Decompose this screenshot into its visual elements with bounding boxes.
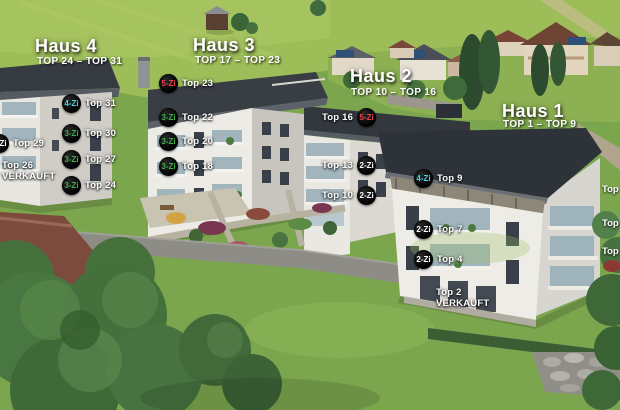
unit-label-top-23: 5-Zi Top 23 (159, 74, 213, 93)
unit-label-top-16: Top 16 5-Zi (322, 108, 376, 127)
room-count-badge: 3-Zi (62, 150, 81, 169)
room-count-badge: 4-Zi (62, 94, 81, 113)
sold-top-number: Top 26 (2, 160, 55, 171)
room-count-badge: 3-Zi (62, 176, 81, 195)
unit-top-number: Top 23 (182, 78, 213, 89)
unit-label-top-22: 3-Zi Top 22 (159, 108, 213, 127)
sold-status: VERKAUFT (2, 171, 55, 182)
room-count-badge: 5-Zi (159, 74, 178, 93)
edge-unit-label: Top (602, 246, 619, 257)
room-count-badge: 3-Zi (62, 124, 81, 143)
room-count-badge: 2-Zi (357, 156, 376, 175)
unit-top-number: Top 22 (182, 112, 213, 123)
unit-top-number: Top 9 (437, 173, 463, 184)
room-count-badge: 4-Zi (414, 169, 433, 188)
unit-top-number: Top 13 (322, 160, 353, 171)
room-count-badge: 2-Zi (414, 220, 433, 239)
sold-label-top-2: Top 2 VERKAUFT (436, 287, 489, 309)
room-count-badge: 2-Zi (0, 134, 9, 153)
haus-3-range: TOP 17 – TOP 23 (195, 55, 280, 66)
unit-label-top-24: 3-Zi Top 24 (62, 176, 116, 195)
sold-label-top-26: Top 26 VERKAUFT (2, 160, 55, 182)
unit-label-top-7: 2-Zi Top 7 (414, 220, 463, 239)
unit-top-number: Top 4 (437, 254, 463, 265)
unit-label-top-27: 3-Zi Top 27 (62, 150, 116, 169)
room-count-badge: 5-Zi (357, 108, 376, 127)
unit-top-number: Top 29 (13, 138, 44, 149)
haus-4-title: Haus 4 (35, 36, 97, 57)
room-count-badge: 2-Zi (357, 186, 376, 205)
haus-4-range: TOP 24 – TOP 31 (37, 56, 122, 67)
unit-top-number: Top 27 (85, 154, 116, 165)
unit-top-number: Top 31 (85, 98, 116, 109)
unit-label-top-9: 4-Zi Top 9 (414, 169, 463, 188)
unit-top-number: Top 20 (182, 136, 213, 147)
room-count-badge: 3-Zi (159, 157, 178, 176)
haus-2-range: TOP 10 – TOP 16 (351, 87, 436, 98)
unit-label-top-4: 2-Zi Top 4 (414, 250, 463, 269)
sold-top-number: Top 2 (436, 287, 489, 298)
unit-top-number: Top 18 (182, 161, 213, 172)
unit-label-top-29: 2-Zi Top 29 (0, 134, 44, 153)
unit-label-top-10: Top 10 2-Zi (322, 186, 376, 205)
sold-status: VERKAUFT (436, 298, 489, 309)
room-count-badge: 2-Zi (414, 250, 433, 269)
unit-label-top-20: 3-Zi Top 20 (159, 132, 213, 151)
annotation-overlay: Haus 4 TOP 24 – TOP 31 Haus 3 TOP 17 – T… (0, 0, 620, 410)
unit-top-number: Top 7 (437, 224, 463, 235)
edge-unit-label: Top (602, 218, 619, 229)
haus-3-title: Haus 3 (193, 35, 255, 56)
unit-top-number: Top 30 (85, 128, 116, 139)
unit-label-top-31: 4-Zi Top 31 (62, 94, 116, 113)
haus-1-range: TOP 1 – TOP 9 (503, 119, 576, 130)
edge-unit-label: Top (602, 184, 619, 195)
unit-top-number: Top 16 (322, 112, 353, 123)
unit-top-number: Top 24 (85, 180, 116, 191)
haus-2-title: Haus 2 (350, 66, 412, 87)
unit-label-top-30: 3-Zi Top 30 (62, 124, 116, 143)
unit-top-number: Top 10 (322, 190, 353, 201)
unit-label-top-18: 3-Zi Top 18 (159, 157, 213, 176)
room-count-badge: 3-Zi (159, 132, 178, 151)
aerial-render-image: Haus 4 TOP 24 – TOP 31 Haus 3 TOP 17 – T… (0, 0, 620, 410)
unit-label-top-13: Top 13 2-Zi (322, 156, 376, 175)
room-count-badge: 3-Zi (159, 108, 178, 127)
